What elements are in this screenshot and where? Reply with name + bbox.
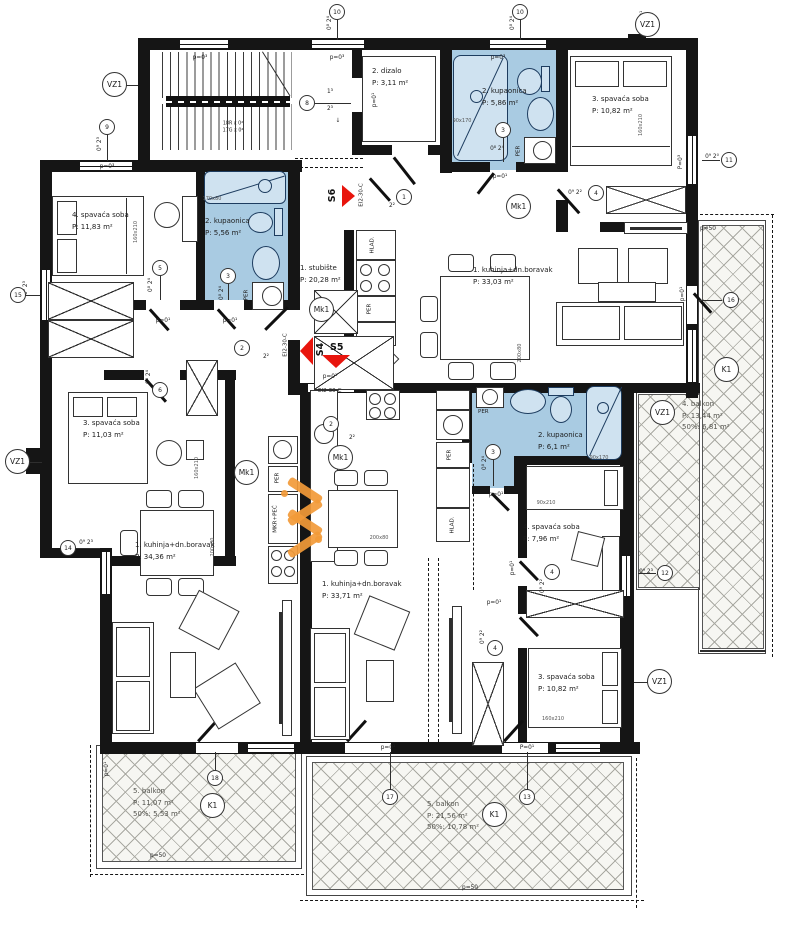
- marker-mk1: Mk1: [234, 460, 259, 485]
- chair: [448, 254, 474, 272]
- room-name: 3. spavaća soba: [83, 419, 140, 427]
- wall: [472, 486, 490, 494]
- room-label-balkon-right: 4. balkon P: 13,44 m² 50%: 6,81 m²: [682, 401, 730, 432]
- floor-plan: 18R x 0² 17G x 0² PER PER HLAD. PER: [0, 0, 794, 952]
- coffee-table: [366, 660, 394, 702]
- annotation-tag: 0⁸ 2⁴: [146, 370, 152, 384]
- dashed-line: [295, 158, 363, 159]
- counter: [436, 390, 470, 410]
- washer-label: PER: [515, 146, 521, 157]
- room-area: P: 11,07 m²: [133, 800, 181, 808]
- annotation-tag: 2²: [349, 435, 355, 441]
- chair: [146, 578, 172, 596]
- toilet-tank: [274, 208, 283, 236]
- annotation-tag: 1³: [327, 89, 333, 95]
- washing-machine-drum: [533, 141, 552, 160]
- marker-14: 14: [60, 540, 76, 556]
- room-pct: 50%: 5,53 m²: [133, 811, 181, 819]
- room-name: 4. spavaća soba: [523, 523, 580, 531]
- washer-label: PER: [243, 290, 249, 301]
- marker-mk1: Mk1: [309, 297, 334, 322]
- room-name: 1. stubište: [300, 264, 337, 272]
- room-area: P: 11,83 m²: [72, 224, 129, 232]
- door-rating-label: EI2-30-C: [283, 333, 289, 356]
- tv: [449, 618, 452, 722]
- marker-10: 10: [329, 4, 345, 20]
- room-name: 4. spavaća soba: [72, 211, 129, 219]
- leader-line: [160, 276, 161, 300]
- room-label-soba-796: 4. spavaća soba P: 7,96 m²: [523, 524, 580, 543]
- marker-vz1: VZ1: [647, 669, 672, 694]
- chair: [490, 362, 516, 380]
- watermark-logo-dot: [315, 536, 322, 543]
- window: [180, 39, 228, 49]
- dimension-label: 90x170: [590, 455, 609, 461]
- chair: [146, 490, 172, 508]
- room-area: P: 5,86 m²: [482, 100, 527, 108]
- chair: [448, 362, 474, 380]
- dimension-label: 160x210: [194, 457, 200, 479]
- room-area: P: 33,03 m²: [473, 279, 553, 287]
- room-area: P: 11,03 m²: [83, 432, 140, 440]
- dishwasher-label: PER: [366, 304, 372, 315]
- marker-15: 15: [10, 287, 26, 303]
- room-label-kuhinja-top: 1. kuhinja+dn.boravak P: 33,03 m²: [473, 267, 553, 286]
- annotation-tag: 0⁸ 2⁴: [219, 286, 225, 300]
- annotation-tag: ↓: [336, 118, 341, 124]
- annotation-tag: p=0³: [100, 164, 115, 170]
- tv-shelf: [282, 600, 292, 736]
- burner: [271, 566, 282, 577]
- dimension-label: 90x170: [453, 118, 472, 124]
- washing-machine-drum: [482, 389, 498, 405]
- room-name: 3. spavaća soba: [538, 673, 595, 681]
- pillow: [575, 61, 619, 87]
- sink: [510, 389, 546, 414]
- window: [687, 136, 697, 184]
- tv-shelf: [452, 606, 462, 734]
- coffee-table: [170, 652, 196, 698]
- room-label-soba-tl: 4. spavaća soba P: 11,83 m²: [72, 212, 129, 231]
- door-swing: [519, 616, 539, 637]
- door-swing: [369, 177, 391, 201]
- annotation-tag: 0⁹ 2³: [97, 137, 103, 151]
- chair: [364, 470, 388, 486]
- room-label-dizalo: 2. dizalo P: 3,11 m²: [372, 68, 408, 87]
- marker-16: 16: [723, 292, 739, 308]
- chair: [334, 470, 358, 486]
- chair: [334, 550, 358, 566]
- fridge: [356, 230, 396, 260]
- room-label-kupaonica-left: 2. kupaonica P: 5,56 m²: [205, 218, 250, 237]
- wall: [288, 160, 300, 300]
- room-name: 5. balkon: [133, 787, 165, 795]
- marker-vz1: VZ1: [635, 12, 660, 37]
- annotation-tag: 2²: [389, 203, 395, 209]
- counter: [436, 468, 470, 508]
- leader-line: [698, 300, 722, 301]
- armchair: [354, 595, 411, 650]
- dashed-line: [428, 558, 429, 742]
- arrow-s4: [300, 337, 313, 365]
- pillow: [107, 397, 137, 417]
- marker-k1: K1: [482, 802, 507, 827]
- desk: [182, 196, 198, 242]
- door-swing: [393, 156, 416, 184]
- marker-4: 4: [588, 185, 604, 201]
- bathroom-fill-right-ext: [472, 462, 520, 488]
- wall: [504, 486, 520, 494]
- wardrobe: [186, 360, 218, 416]
- room-area: P: 21,56 m²: [427, 813, 479, 821]
- wall: [40, 160, 52, 558]
- annotation-tag: 2²: [263, 354, 269, 360]
- wardrobe: [472, 662, 504, 746]
- annotation-tag: p=0¹: [680, 287, 686, 302]
- annotation-tag: 0⁹ 2²: [480, 630, 486, 644]
- marker-k1: K1: [714, 357, 739, 382]
- annotation-tag: p=50: [700, 226, 716, 232]
- staircase-landing-bar: [166, 96, 290, 107]
- balcony-bl-hatch: [102, 750, 296, 862]
- room-area: P: 33,71 m²: [322, 593, 402, 601]
- door-gap: [687, 286, 697, 324]
- wardrobe: [606, 186, 686, 214]
- arrow-s5-label: S5: [330, 342, 343, 353]
- balcony-railing-dashed: [772, 215, 773, 657]
- marker-5: 5: [152, 260, 168, 276]
- marker-2: 2: [234, 340, 250, 356]
- annotation-tag: 0⁹ 2²: [540, 579, 546, 593]
- chair: [154, 202, 180, 228]
- armchair: [178, 590, 239, 650]
- room-area: P: 10,82 m²: [538, 686, 595, 694]
- annotation-tag: p=0¹: [487, 600, 502, 606]
- window: [687, 330, 697, 382]
- room-name: 2. dizalo: [372, 67, 401, 75]
- leader-line: [30, 462, 42, 463]
- wall: [138, 38, 150, 172]
- room-name: 3. spavaća soba: [592, 95, 649, 103]
- window: [101, 552, 111, 594]
- room-pct: 50%: 6,81 m²: [682, 424, 730, 432]
- shower-head: [258, 179, 272, 193]
- sink: [527, 97, 554, 131]
- annotation-tag: 0⁸ 2⁴: [148, 278, 154, 292]
- sofa-cushion: [116, 627, 150, 677]
- annotation-tag: 0⁹ 2²: [568, 190, 582, 196]
- marker-9: 9: [99, 119, 115, 135]
- pillow: [623, 61, 667, 87]
- wall: [518, 648, 527, 742]
- dishwasher: [356, 296, 396, 322]
- armchair: [628, 248, 668, 284]
- room-area: P: 5,56 m²: [205, 230, 250, 238]
- wardrobe: [48, 282, 134, 320]
- washing-machine-drum: [262, 286, 282, 306]
- room-label-stubiste: 1. stubište P: 20,28 m²: [300, 265, 341, 284]
- room-pct: 50%: 10,78 m²: [427, 824, 479, 832]
- leader-line: [228, 284, 229, 300]
- burner: [360, 264, 372, 276]
- wall: [448, 162, 490, 172]
- shower-head: [597, 402, 609, 414]
- annotation-tag: 0⁹ 2⁰: [705, 154, 719, 160]
- annotation-tag: p=0¹: [372, 93, 378, 108]
- door-gap: [352, 78, 362, 112]
- chair: [156, 440, 182, 466]
- room-label-balkon-bl: 5. balkon P: 11,07 m² 50%: 5,53 m²: [133, 788, 181, 819]
- burner: [369, 407, 381, 419]
- leader-line: [74, 548, 100, 549]
- room-area: P: 13,44 m²: [682, 413, 730, 421]
- door-swing: [264, 306, 288, 330]
- armchair: [193, 662, 261, 729]
- door-rating-label: EI2-30-C: [318, 388, 341, 394]
- dashed-line: [438, 558, 439, 742]
- room-name: 2. kupaonica: [482, 87, 527, 95]
- leader-line: [315, 103, 351, 104]
- annotation-tag: P=0¹: [520, 745, 534, 751]
- marker-k1: K1: [200, 793, 225, 818]
- sink: [273, 440, 292, 459]
- marker-3: 3: [495, 122, 511, 138]
- wall: [556, 200, 568, 232]
- staircase-steps: [162, 104, 292, 150]
- dashed-line: [295, 167, 363, 168]
- arrow-s6: [342, 185, 355, 207]
- sofa-cushion: [562, 306, 620, 340]
- leader-line: [634, 682, 648, 683]
- burner: [384, 407, 396, 419]
- marker-6: 6: [152, 382, 168, 398]
- stair-going-text: 17G x 0²: [223, 129, 244, 134]
- room-area: P: 6,1 m²: [538, 444, 583, 452]
- pillow: [604, 470, 618, 506]
- dimension-label: 200x80: [370, 535, 389, 541]
- room-label-kuhinja-center: 1. kuhinja+dn.boravak P: 33,71 m²: [322, 581, 402, 600]
- balcony-railing-dashed: [700, 214, 774, 215]
- dimension-label: 200x80: [517, 344, 523, 363]
- room-name: 2. kupaonica: [205, 217, 250, 225]
- tv: [279, 612, 282, 724]
- room-area: P: 7,96 m²: [523, 536, 580, 544]
- leader-line: [215, 752, 216, 770]
- annotation-tag: 0⁹ 2³: [639, 569, 653, 575]
- toilet-bowl: [248, 212, 273, 233]
- balcony-railing-dashed: [90, 874, 304, 875]
- window: [556, 743, 600, 753]
- toilet-tank: [548, 387, 574, 396]
- marker-1: 1: [396, 189, 412, 205]
- chair: [420, 332, 438, 358]
- annotation-tag: 2³: [327, 106, 333, 112]
- room-label-kupaonica-right: 2. kupaonica P: 6,1 m²: [538, 432, 583, 451]
- dimension-label: 160x210: [133, 221, 139, 243]
- marker-3: 3: [220, 268, 236, 284]
- leader-line: [390, 752, 391, 790]
- leader-line: [107, 133, 108, 161]
- armchair: [578, 248, 618, 284]
- arrow-s6-label: S6: [327, 189, 338, 202]
- window: [312, 39, 364, 49]
- pillow: [57, 239, 77, 273]
- toilet-bowl: [550, 396, 572, 423]
- room-label-kupaonica-top: 2. kupaonica P: 5,86 m²: [482, 88, 527, 107]
- coffee-table: [598, 282, 656, 302]
- wardrobe: [526, 590, 624, 618]
- leader-line: [702, 160, 720, 161]
- marker-vz1: VZ1: [5, 449, 30, 474]
- annotation-tag: p=50: [150, 853, 166, 859]
- marker-11: 11: [721, 152, 737, 168]
- burner: [384, 393, 396, 405]
- sofa-cushion: [314, 633, 346, 683]
- marker-vz1: VZ1: [650, 400, 675, 425]
- burner: [369, 393, 381, 405]
- room-label-soba-tr: 3. spavaća soba P: 10,82 m²: [592, 96, 649, 115]
- burner: [360, 280, 372, 292]
- balcony-right-hatch: [702, 225, 764, 649]
- desk: [602, 536, 620, 592]
- marker-12: 12: [657, 565, 673, 581]
- annotation-tag: p=0¹: [510, 561, 516, 576]
- marker-2: 2: [323, 416, 339, 432]
- marker-4: 4: [544, 564, 560, 580]
- chair: [420, 296, 438, 322]
- balcony-edge: [700, 650, 766, 652]
- leader-line: [24, 295, 40, 296]
- annotation-tag: p=0³: [193, 55, 208, 61]
- dimension-label: 160x210: [638, 114, 644, 136]
- annotation-tag: p=0¹: [381, 745, 396, 751]
- window: [248, 743, 294, 753]
- annotation-tag: p=0¹: [156, 318, 171, 324]
- dimension-label: 200x80: [210, 538, 216, 557]
- fridge-label: HLAD.: [370, 236, 376, 253]
- room-label-balkon-bc: 5. balkon P: 21,56 m² 50%: 10,78 m²: [427, 801, 479, 832]
- annotation-tag: 0⁸ 2⁴: [490, 146, 504, 152]
- room-label-kuhinja-left: 1. kuhinja+dn.boravak P: 34,36 m²: [135, 542, 215, 561]
- sink: [252, 246, 280, 280]
- balcony-railing-dashed: [90, 745, 91, 877]
- arrow-s5: [322, 355, 350, 368]
- marker-3: 3: [485, 444, 501, 460]
- annotation-tag: p=0¹: [493, 174, 508, 180]
- room-name: 1. kuhinja+dn.boravak: [135, 541, 215, 549]
- annotation-tag: p=0¹: [223, 318, 238, 324]
- chair: [178, 490, 204, 508]
- marker-13: 13: [519, 789, 535, 805]
- leader-line: [493, 460, 494, 486]
- wall: [104, 370, 144, 380]
- bed-line: [126, 198, 127, 274]
- annotation-tag: p=0¹: [323, 374, 338, 380]
- oven-label: MKR+PEĆ: [273, 505, 279, 532]
- marker-mk1: Mk1: [328, 445, 353, 470]
- door-swing: [519, 560, 539, 581]
- stair-riser-text: 18R x 0²: [223, 122, 243, 127]
- burner: [378, 280, 390, 292]
- bed-line: [572, 146, 670, 147]
- room-name: 1. kuhinja+dn.boravak: [473, 266, 553, 274]
- room-name: 1. kuhinja+dn.boravak: [322, 580, 402, 588]
- marker-mk1: Mk1: [506, 194, 531, 219]
- marker-10: 10: [512, 4, 528, 20]
- room-area: P: 20,28 m²: [300, 277, 341, 285]
- door-rating-label: EI2-30-C: [359, 183, 365, 206]
- wall: [556, 50, 568, 168]
- marker-4: 4: [487, 640, 503, 656]
- room-label-soba-br: 3. spavaća soba P: 10,82 m²: [538, 674, 595, 693]
- sofa-cushion: [116, 681, 150, 731]
- burner: [271, 550, 282, 561]
- pillow: [602, 690, 618, 724]
- annotation-tag: p=0³: [330, 55, 345, 61]
- dishwasher: [436, 442, 470, 468]
- watermark-logo-dot: [281, 490, 288, 497]
- annotation-tag: 0⁹ 2³: [79, 540, 93, 546]
- fridge-label: HLAD.: [450, 516, 456, 533]
- leader-line: [527, 752, 528, 790]
- marker-8: 8: [299, 95, 315, 111]
- dashed-line: [473, 464, 474, 590]
- burner: [378, 264, 390, 276]
- room-label-soba-ml: 3. spavaća soba P: 11,03 m²: [83, 420, 140, 439]
- annotation-tag: p=0¹: [104, 762, 110, 777]
- annotation-tag: p=0³: [491, 55, 506, 61]
- burner: [284, 566, 295, 577]
- balcony-railing-dashed: [300, 900, 644, 901]
- sofa-cushion: [624, 306, 682, 340]
- chair: [364, 550, 388, 566]
- sofa-cushion: [314, 687, 346, 737]
- dimension-label: 90x210: [537, 500, 556, 506]
- marker-18: 18: [207, 770, 223, 786]
- marker-17: 17: [382, 789, 398, 805]
- dimension-label: 170x80: [203, 196, 222, 202]
- room-area: P: 34,36 m²: [135, 554, 215, 562]
- dimension-label: 160x210: [542, 716, 564, 722]
- toilet-tank: [541, 66, 550, 92]
- tv: [630, 227, 682, 230]
- annotation-tag: P=0³: [678, 155, 684, 169]
- sink: [443, 415, 463, 435]
- pillow: [602, 652, 618, 686]
- dishwasher-label: PER: [274, 473, 280, 484]
- annotation-tag: p=50: [462, 885, 478, 891]
- dishwasher-label: PER: [446, 450, 452, 461]
- door-gap: [196, 743, 238, 753]
- wall: [440, 45, 452, 173]
- room-name: 2. kupaonica: [538, 431, 583, 439]
- staircase-steps: [162, 52, 292, 98]
- wardrobe: [48, 320, 134, 358]
- pillow: [73, 397, 103, 417]
- marker-vz1: VZ1: [102, 72, 127, 97]
- washer-label: PER: [478, 409, 489, 415]
- balcony-railing-dashed: [636, 758, 637, 908]
- room-area: P: 3,11 m²: [372, 80, 408, 88]
- window: [490, 39, 546, 49]
- annotation-tag: p=0¹: [489, 492, 504, 498]
- room-name: 5. balkon: [427, 800, 459, 808]
- room-name: 4. balkon: [682, 400, 714, 408]
